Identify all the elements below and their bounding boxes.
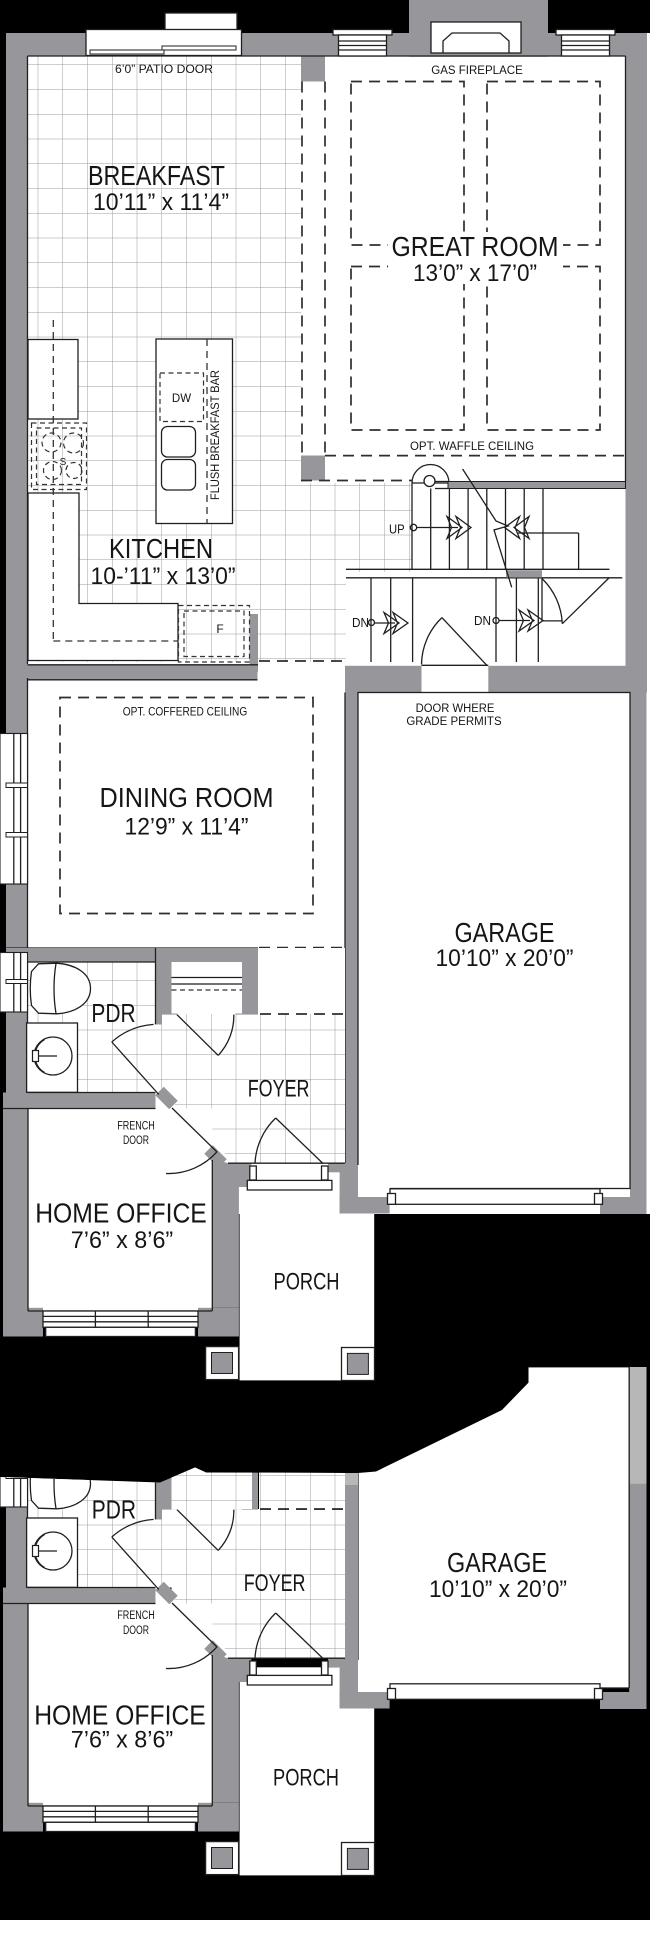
svg-text:DOOR: DOOR [123,1135,149,1147]
svg-text:FLUSH BREAKFAST BAR: FLUSH BREAKFAST BAR [210,370,222,500]
svg-text:OPT. WAFFLE CEILING: OPT. WAFFLE CEILING [410,439,534,453]
svg-text:PDR: PDR [91,998,135,1028]
svg-text:GAS FIREPLACE: GAS FIREPLACE [431,65,523,77]
svg-text:FRENCH: FRENCH [117,1610,155,1622]
svg-text:10-’11” x 13’0”: 10-’11” x 13’0” [91,563,236,590]
svg-text:GARAGE: GARAGE [455,917,555,948]
svg-text:6’0” PATIO DOOR: 6’0” PATIO DOOR [115,64,213,76]
svg-text:DN: DN [474,613,491,628]
svg-text:DN: DN [352,615,369,630]
svg-text:DW: DW [172,393,191,405]
svg-text:HOME OFFICE: HOME OFFICE [35,1198,207,1229]
svg-text:10’11” x 11’4”: 10’11” x 11’4” [93,189,229,216]
svg-text:BREAKFAST: BREAKFAST [88,160,225,191]
svg-text:FOYER: FOYER [248,1076,310,1103]
svg-text:10’10” x 20’0”: 10’10” x 20’0” [436,945,574,972]
svg-text:PORCH: PORCH [274,1269,340,1296]
svg-text:PDR: PDR [92,1494,136,1524]
svg-text:FOYER: FOYER [244,1570,306,1597]
svg-text:GARAGE: GARAGE [447,1547,547,1578]
svg-text:S: S [60,457,67,468]
svg-text:7’6” x 8’6”: 7’6” x 8’6” [71,1227,173,1254]
svg-text:DOOR WHERE: DOOR WHERE [416,703,495,715]
svg-text:PORCH: PORCH [273,1765,339,1792]
svg-text:GREAT ROOM: GREAT ROOM [392,231,559,262]
svg-text:F: F [216,622,223,636]
svg-text:OPT. COFFERED CEILING: OPT. COFFERED CEILING [123,705,248,719]
svg-text:10’10” x 20’0”: 10’10” x 20’0” [429,1576,567,1603]
svg-text:13’0” x 17’0”: 13’0” x 17’0” [413,260,537,287]
svg-text:GRADE PERMITS: GRADE PERMITS [406,716,502,728]
svg-text:12’9” x 11’4”: 12’9” x 11’4” [125,814,249,841]
svg-text:DINING ROOM: DINING ROOM [100,782,274,813]
svg-text:UP: UP [389,522,405,537]
svg-text:FRENCH: FRENCH [117,1121,155,1133]
svg-text:DOOR: DOOR [123,1625,149,1637]
svg-text:KITCHEN: KITCHEN [109,533,213,564]
svg-text:7’6” x 8’6”: 7’6” x 8’6” [71,1726,173,1753]
